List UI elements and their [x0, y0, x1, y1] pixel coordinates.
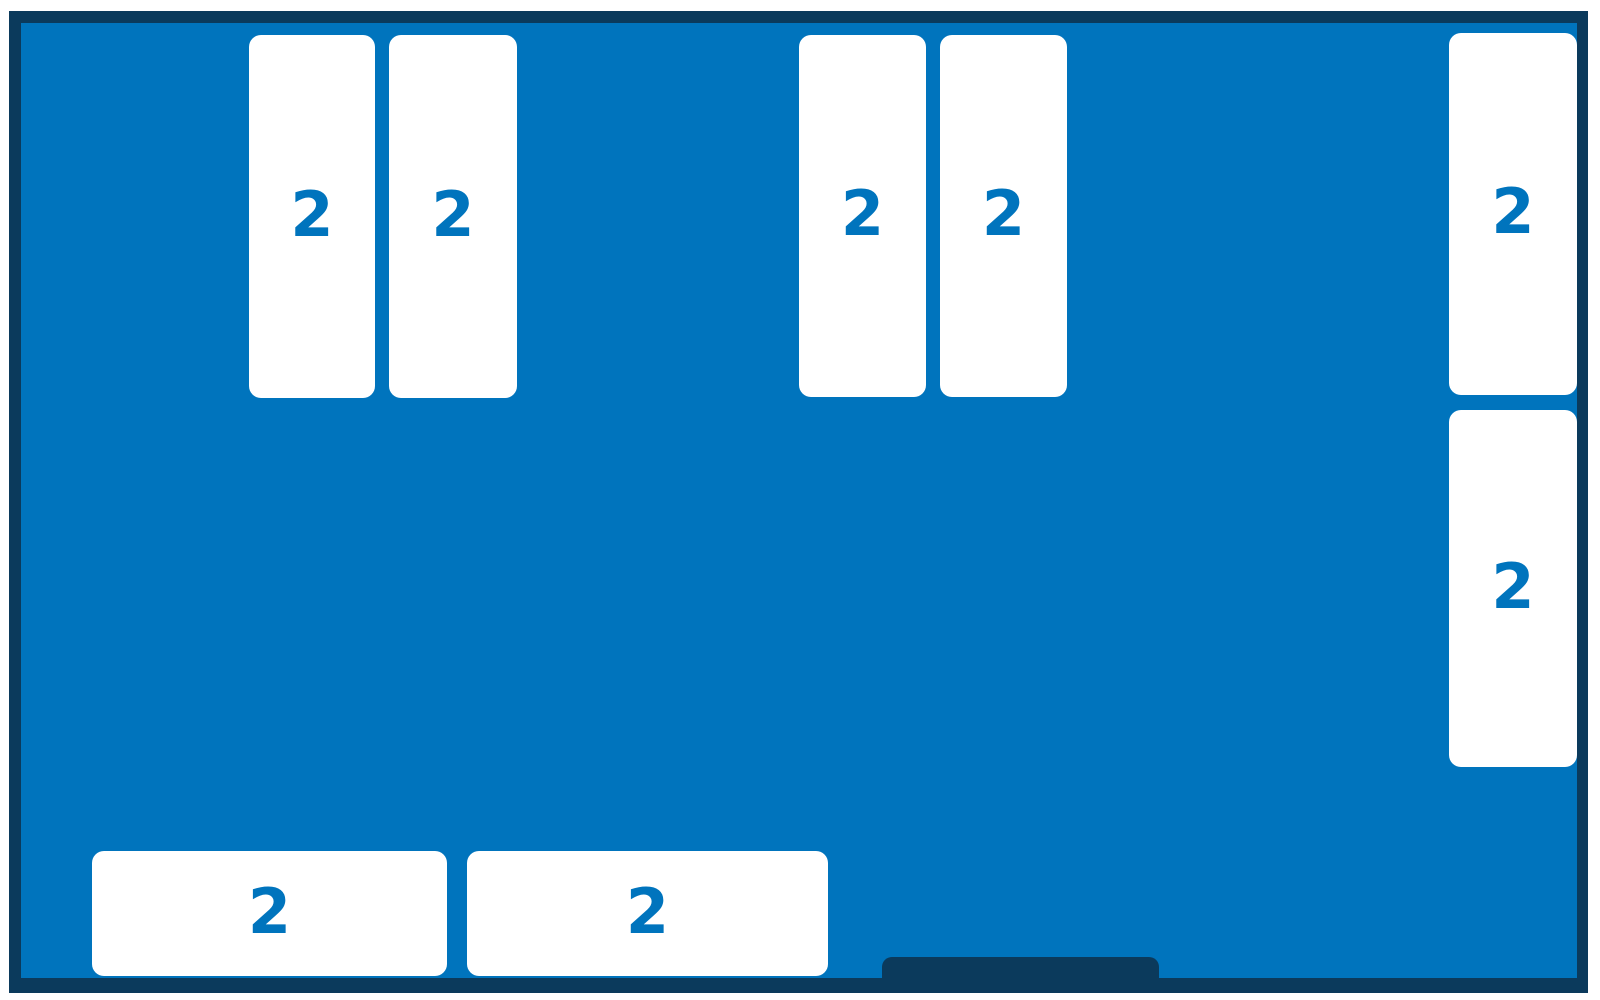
- entrance-door: [882, 957, 1159, 978]
- table-top-mid-1[interactable]: 2: [799, 35, 926, 397]
- table-capacity-label: 2: [982, 183, 1025, 245]
- table-top-mid-2[interactable]: 2: [940, 35, 1067, 397]
- table-capacity-label: 2: [431, 184, 474, 246]
- table-bottom-1[interactable]: 2: [92, 851, 447, 976]
- table-capacity-label: 2: [248, 881, 291, 943]
- table-capacity-label: 2: [290, 184, 333, 246]
- table-top-left-1[interactable]: 2: [249, 35, 375, 398]
- table-capacity-label: 2: [1491, 181, 1534, 243]
- room-wall: 2 2 2 2 2 2 2 2: [9, 11, 1588, 993]
- floor-plan: 2 2 2 2 2 2 2 2: [0, 0, 1600, 1000]
- table-capacity-label: 2: [1491, 556, 1534, 618]
- table-capacity-label: 2: [841, 183, 884, 245]
- table-capacity-label: 2: [626, 881, 669, 943]
- table-right-top[interactable]: 2: [1449, 33, 1577, 395]
- table-right-bottom[interactable]: 2: [1449, 410, 1577, 767]
- room-floor: 2 2 2 2 2 2 2 2: [21, 23, 1577, 978]
- table-top-left-2[interactable]: 2: [389, 35, 517, 398]
- table-bottom-2[interactable]: 2: [467, 851, 828, 976]
